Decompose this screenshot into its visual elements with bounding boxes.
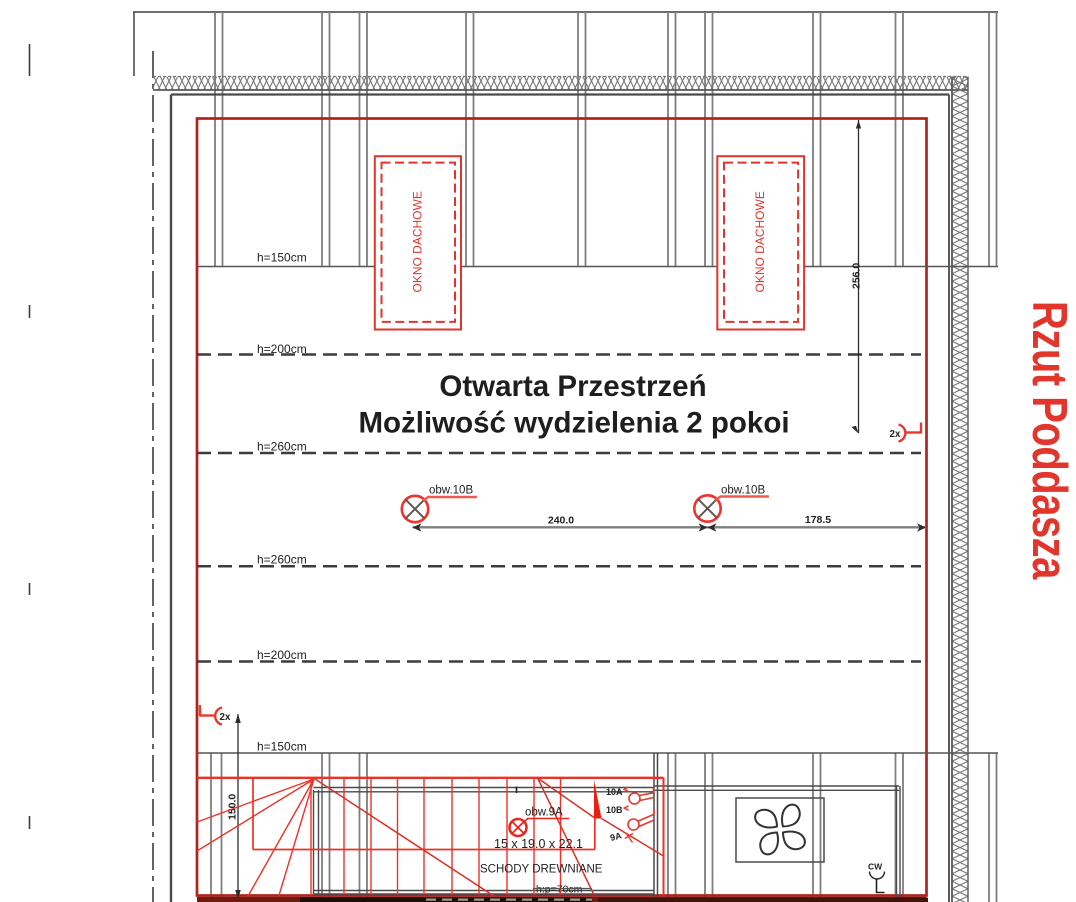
svg-text:Rzut Poddasza: Rzut Poddasza bbox=[1022, 301, 1076, 580]
svg-text:2x: 2x bbox=[890, 429, 901, 440]
svg-text:h=260cm: h=260cm bbox=[257, 553, 307, 567]
svg-text:15 x 19.0 x 22.1: 15 x 19.0 x 22.1 bbox=[494, 837, 583, 851]
svg-text:10B: 10B bbox=[606, 805, 623, 815]
svg-text:obw.9A: obw.9A bbox=[525, 807, 563, 819]
svg-text:Możliwość wydzielenia 2 pokoi: Możliwość wydzielenia 2 pokoi bbox=[358, 407, 789, 440]
svg-text:CW: CW bbox=[868, 862, 883, 872]
svg-text:h=260cm: h=260cm bbox=[257, 440, 307, 454]
svg-text:178.5: 178.5 bbox=[805, 514, 831, 526]
svg-text:OKNO DACHOWE: OKNO DACHOWE bbox=[753, 191, 767, 292]
svg-text:h=150cm: h=150cm bbox=[257, 251, 307, 265]
svg-text:h=200cm: h=200cm bbox=[257, 648, 307, 662]
svg-text:240.0: 240.0 bbox=[548, 515, 574, 527]
svg-text:256.0: 256.0 bbox=[851, 263, 863, 289]
svg-text:obw.10B: obw.10B bbox=[721, 485, 765, 497]
svg-text:Otwarta Przestrzeń: Otwarta Przestrzeń bbox=[439, 370, 706, 403]
svg-text:2x: 2x bbox=[220, 712, 231, 723]
svg-text:OKNO DACHOWE: OKNO DACHOWE bbox=[411, 191, 425, 292]
svg-text:obw.10B: obw.10B bbox=[429, 485, 473, 497]
svg-text:h=200cm: h=200cm bbox=[257, 342, 307, 356]
svg-text:h=150cm: h=150cm bbox=[257, 740, 307, 754]
svg-text:h:p=70cm: h:p=70cm bbox=[536, 884, 583, 896]
svg-text:10A: 10A bbox=[606, 787, 623, 797]
svg-text:SCHODY DREWNIANE: SCHODY DREWNIANE bbox=[480, 864, 603, 876]
